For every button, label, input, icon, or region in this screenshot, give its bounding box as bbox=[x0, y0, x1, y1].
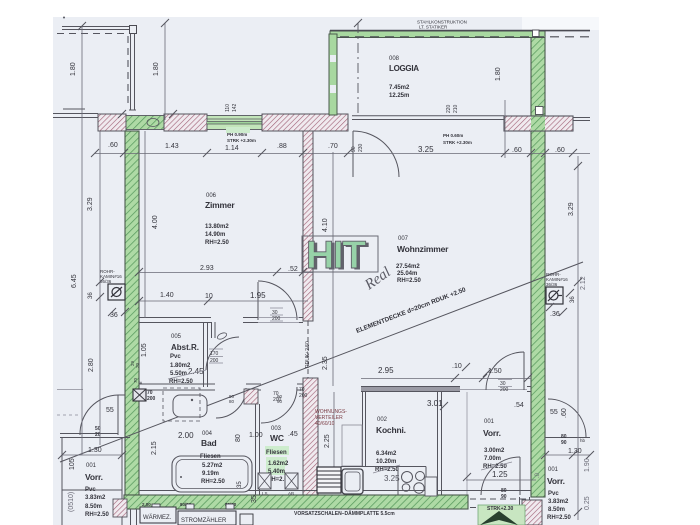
svg-text:1.30: 1.30 bbox=[568, 448, 582, 455]
svg-text:WC: WC bbox=[270, 433, 284, 443]
svg-text:hb: hb bbox=[580, 438, 586, 443]
svg-text:LS: LS bbox=[262, 491, 268, 496]
svg-text:55: 55 bbox=[550, 409, 558, 416]
svg-text:9.19m: 9.19m bbox=[202, 471, 219, 477]
svg-text:3.83m2: 3.83m2 bbox=[85, 495, 106, 501]
svg-text:10.20m: 10.20m bbox=[376, 459, 396, 465]
svg-text:VORSATZSCHALEN–DÄMMPLATTE 5.5: VORSATZSCHALEN–DÄMMPLATTE 5.5cm bbox=[294, 510, 395, 517]
svg-text:230: 230 bbox=[358, 143, 364, 152]
svg-text:008: 008 bbox=[389, 56, 400, 62]
svg-text:1.05: 1.05 bbox=[141, 343, 148, 357]
svg-text:(0510): (0510) bbox=[68, 492, 75, 512]
svg-text:105: 105 bbox=[69, 458, 76, 470]
svg-text:.45: .45 bbox=[288, 431, 298, 438]
svg-text:6.45: 6.45 bbox=[71, 274, 78, 288]
svg-text:2.25: 2.25 bbox=[324, 434, 331, 448]
svg-text:1.25: 1.25 bbox=[492, 470, 508, 479]
svg-text:36: 36 bbox=[88, 292, 94, 299]
svg-text:LT. STATIKER: LT. STATIKER bbox=[419, 25, 448, 30]
svg-text:.88: .88 bbox=[277, 143, 287, 150]
svg-text:Bad: Bad bbox=[201, 438, 216, 448]
svg-text:Vorr.: Vorr. bbox=[483, 428, 501, 438]
svg-text:3.83m2: 3.83m2 bbox=[548, 499, 569, 505]
svg-text:25.04m: 25.04m bbox=[397, 271, 417, 277]
svg-text:Zimmer: Zimmer bbox=[205, 200, 235, 210]
svg-text:2.95: 2.95 bbox=[378, 366, 394, 375]
svg-text:001: 001 bbox=[548, 467, 559, 473]
svg-text:PH 0.60m: PH 0.60m bbox=[443, 133, 463, 138]
svg-text:3.25: 3.25 bbox=[418, 145, 434, 154]
svg-text:8.50m: 8.50m bbox=[548, 507, 565, 513]
svg-text:10: 10 bbox=[205, 293, 213, 300]
svg-text:5.27m2: 5.27m2 bbox=[202, 463, 223, 469]
svg-text:90: 90 bbox=[561, 440, 567, 446]
svg-text:006: 006 bbox=[206, 193, 217, 199]
svg-text:Abst.R.: Abst.R. bbox=[171, 343, 199, 352]
svg-text:4.00: 4.00 bbox=[152, 215, 159, 229]
svg-text:Fliesen: Fliesen bbox=[200, 454, 221, 460]
svg-text:.60: .60 bbox=[561, 408, 568, 418]
svg-text:1.40: 1.40 bbox=[160, 292, 174, 299]
svg-text:.60: .60 bbox=[555, 147, 565, 154]
svg-text:Fliesen: Fliesen bbox=[266, 450, 287, 456]
svg-text:4.10: 4.10 bbox=[322, 218, 329, 232]
svg-text:STRK +2.30m: STRK +2.30m bbox=[443, 140, 472, 145]
svg-text:HIT: HIT bbox=[306, 234, 366, 277]
svg-text:WÄRMEZ.: WÄRMEZ. bbox=[143, 514, 172, 521]
svg-text:110: 110 bbox=[225, 104, 231, 112]
svg-text:2.00: 2.00 bbox=[178, 431, 194, 440]
svg-text:3.01: 3.01 bbox=[427, 399, 443, 408]
svg-text:RDUK+2.50: RDUK+2.50 bbox=[305, 341, 311, 368]
svg-text:1.14: 1.14 bbox=[225, 145, 239, 152]
svg-text:27.54m2: 27.54m2 bbox=[396, 264, 420, 270]
svg-text:35: 35 bbox=[251, 495, 258, 503]
svg-text:13.80m2: 13.80m2 bbox=[205, 224, 229, 230]
svg-text:AB: AB bbox=[288, 491, 294, 496]
svg-text:1.80: 1.80 bbox=[70, 62, 77, 76]
svg-text:Pvc: Pvc bbox=[170, 354, 181, 360]
svg-text:.60: .60 bbox=[108, 142, 118, 149]
svg-text:14.90m: 14.90m bbox=[205, 232, 225, 238]
svg-text:.54: .54 bbox=[514, 402, 524, 409]
svg-text:.10: .10 bbox=[452, 363, 462, 370]
svg-text:2.15: 2.15 bbox=[151, 441, 158, 455]
svg-text:RH=2.50: RH=2.50 bbox=[375, 467, 400, 473]
svg-text:1.00: 1.00 bbox=[249, 432, 263, 439]
svg-text:2.80: 2.80 bbox=[88, 358, 95, 372]
svg-text:80: 80 bbox=[235, 434, 242, 442]
svg-text:3.29: 3.29 bbox=[87, 197, 94, 211]
svg-text:LOGGIA: LOGGIA bbox=[389, 64, 419, 73]
svg-text:.0: .0 bbox=[535, 472, 541, 478]
svg-text:.36: .36 bbox=[550, 311, 560, 318]
svg-text:RH=2.50: RH=2.50 bbox=[169, 379, 194, 385]
svg-text:20: 20 bbox=[135, 362, 140, 368]
svg-text:220: 220 bbox=[446, 104, 452, 113]
svg-text:170: 170 bbox=[210, 351, 219, 357]
svg-text:36: 36 bbox=[570, 296, 576, 303]
svg-text:1.80: 1.80 bbox=[153, 62, 160, 76]
svg-text:90: 90 bbox=[277, 399, 283, 404]
svg-text:2.93: 2.93 bbox=[200, 265, 214, 272]
svg-text:5.50m: 5.50m bbox=[170, 371, 187, 377]
svg-text:RH=2.50: RH=2.50 bbox=[547, 515, 572, 521]
svg-text:200: 200 bbox=[299, 393, 308, 399]
svg-text:35: 35 bbox=[237, 481, 243, 488]
svg-text:6.34m2: 6.34m2 bbox=[376, 451, 397, 457]
svg-text:210: 210 bbox=[453, 104, 459, 113]
svg-text:3.29: 3.29 bbox=[568, 202, 575, 216]
svg-text:Vorr.: Vorr. bbox=[85, 472, 103, 482]
svg-text:12.25m: 12.25m bbox=[389, 93, 409, 99]
svg-text:1.90: 1.90 bbox=[584, 458, 591, 472]
svg-text:8.50m: 8.50m bbox=[85, 504, 102, 510]
svg-text:004: 004 bbox=[202, 431, 213, 437]
svg-text:3.00m2: 3.00m2 bbox=[484, 448, 505, 454]
svg-text:90: 90 bbox=[501, 494, 507, 500]
svg-text:STRK +2.30m: STRK +2.30m bbox=[227, 138, 256, 143]
svg-text:STRK+2.30: STRK+2.30 bbox=[487, 506, 513, 512]
svg-text:1.30: 1.30 bbox=[88, 447, 102, 454]
svg-text:RH=2.50: RH=2.50 bbox=[205, 240, 230, 246]
svg-text:142: 142 bbox=[232, 103, 238, 112]
svg-text:.70: .70 bbox=[328, 143, 338, 150]
svg-text:RH=2.50: RH=2.50 bbox=[397, 278, 422, 284]
svg-text:007: 007 bbox=[398, 236, 409, 242]
svg-text:200: 200 bbox=[500, 387, 509, 393]
svg-text:0.25: 0.25 bbox=[584, 496, 591, 510]
svg-text:55: 55 bbox=[106, 407, 114, 414]
svg-text:RH=2.50: RH=2.50 bbox=[201, 479, 226, 485]
svg-text:Vorr.: Vorr. bbox=[547, 476, 565, 486]
svg-text:PH 0.90m: PH 0.90m bbox=[227, 132, 247, 137]
svg-text:Wohnzimmer: Wohnzimmer bbox=[397, 244, 449, 254]
svg-text:2.45: 2.45 bbox=[188, 367, 204, 376]
svg-text:200: 200 bbox=[147, 396, 156, 402]
svg-text:2.00: 2.00 bbox=[142, 502, 151, 507]
svg-text:2.35: 2.35 bbox=[322, 356, 329, 370]
svg-text:1.95: 1.95 bbox=[250, 291, 266, 300]
svg-text:Pvc: Pvc bbox=[548, 491, 559, 497]
svg-text:001: 001 bbox=[86, 463, 97, 469]
svg-text:36/36: 36/36 bbox=[546, 282, 558, 287]
svg-text:Pvc: Pvc bbox=[85, 487, 96, 493]
svg-text:001: 001 bbox=[484, 419, 495, 425]
svg-text:STROMZÄHLER: STROMZÄHLER bbox=[181, 517, 227, 524]
svg-text:RH=2.50: RH=2.50 bbox=[85, 512, 110, 518]
svg-text:7.00m: 7.00m bbox=[484, 456, 501, 462]
svg-text:Kochni.: Kochni. bbox=[376, 425, 406, 435]
svg-text:003: 003 bbox=[271, 426, 282, 432]
svg-text:1.80: 1.80 bbox=[495, 67, 502, 81]
svg-text:.52: .52 bbox=[288, 266, 298, 273]
svg-text:.60: .60 bbox=[512, 147, 522, 154]
svg-text:80: 80 bbox=[229, 399, 235, 404]
svg-text:002: 002 bbox=[377, 417, 388, 423]
svg-text:005: 005 bbox=[171, 334, 182, 340]
svg-text:1.43: 1.43 bbox=[165, 143, 179, 150]
svg-text:40/60/10: 40/60/10 bbox=[315, 421, 335, 427]
svg-text:1.50: 1.50 bbox=[488, 368, 502, 375]
svg-text:7.45m2: 7.45m2 bbox=[389, 85, 410, 91]
